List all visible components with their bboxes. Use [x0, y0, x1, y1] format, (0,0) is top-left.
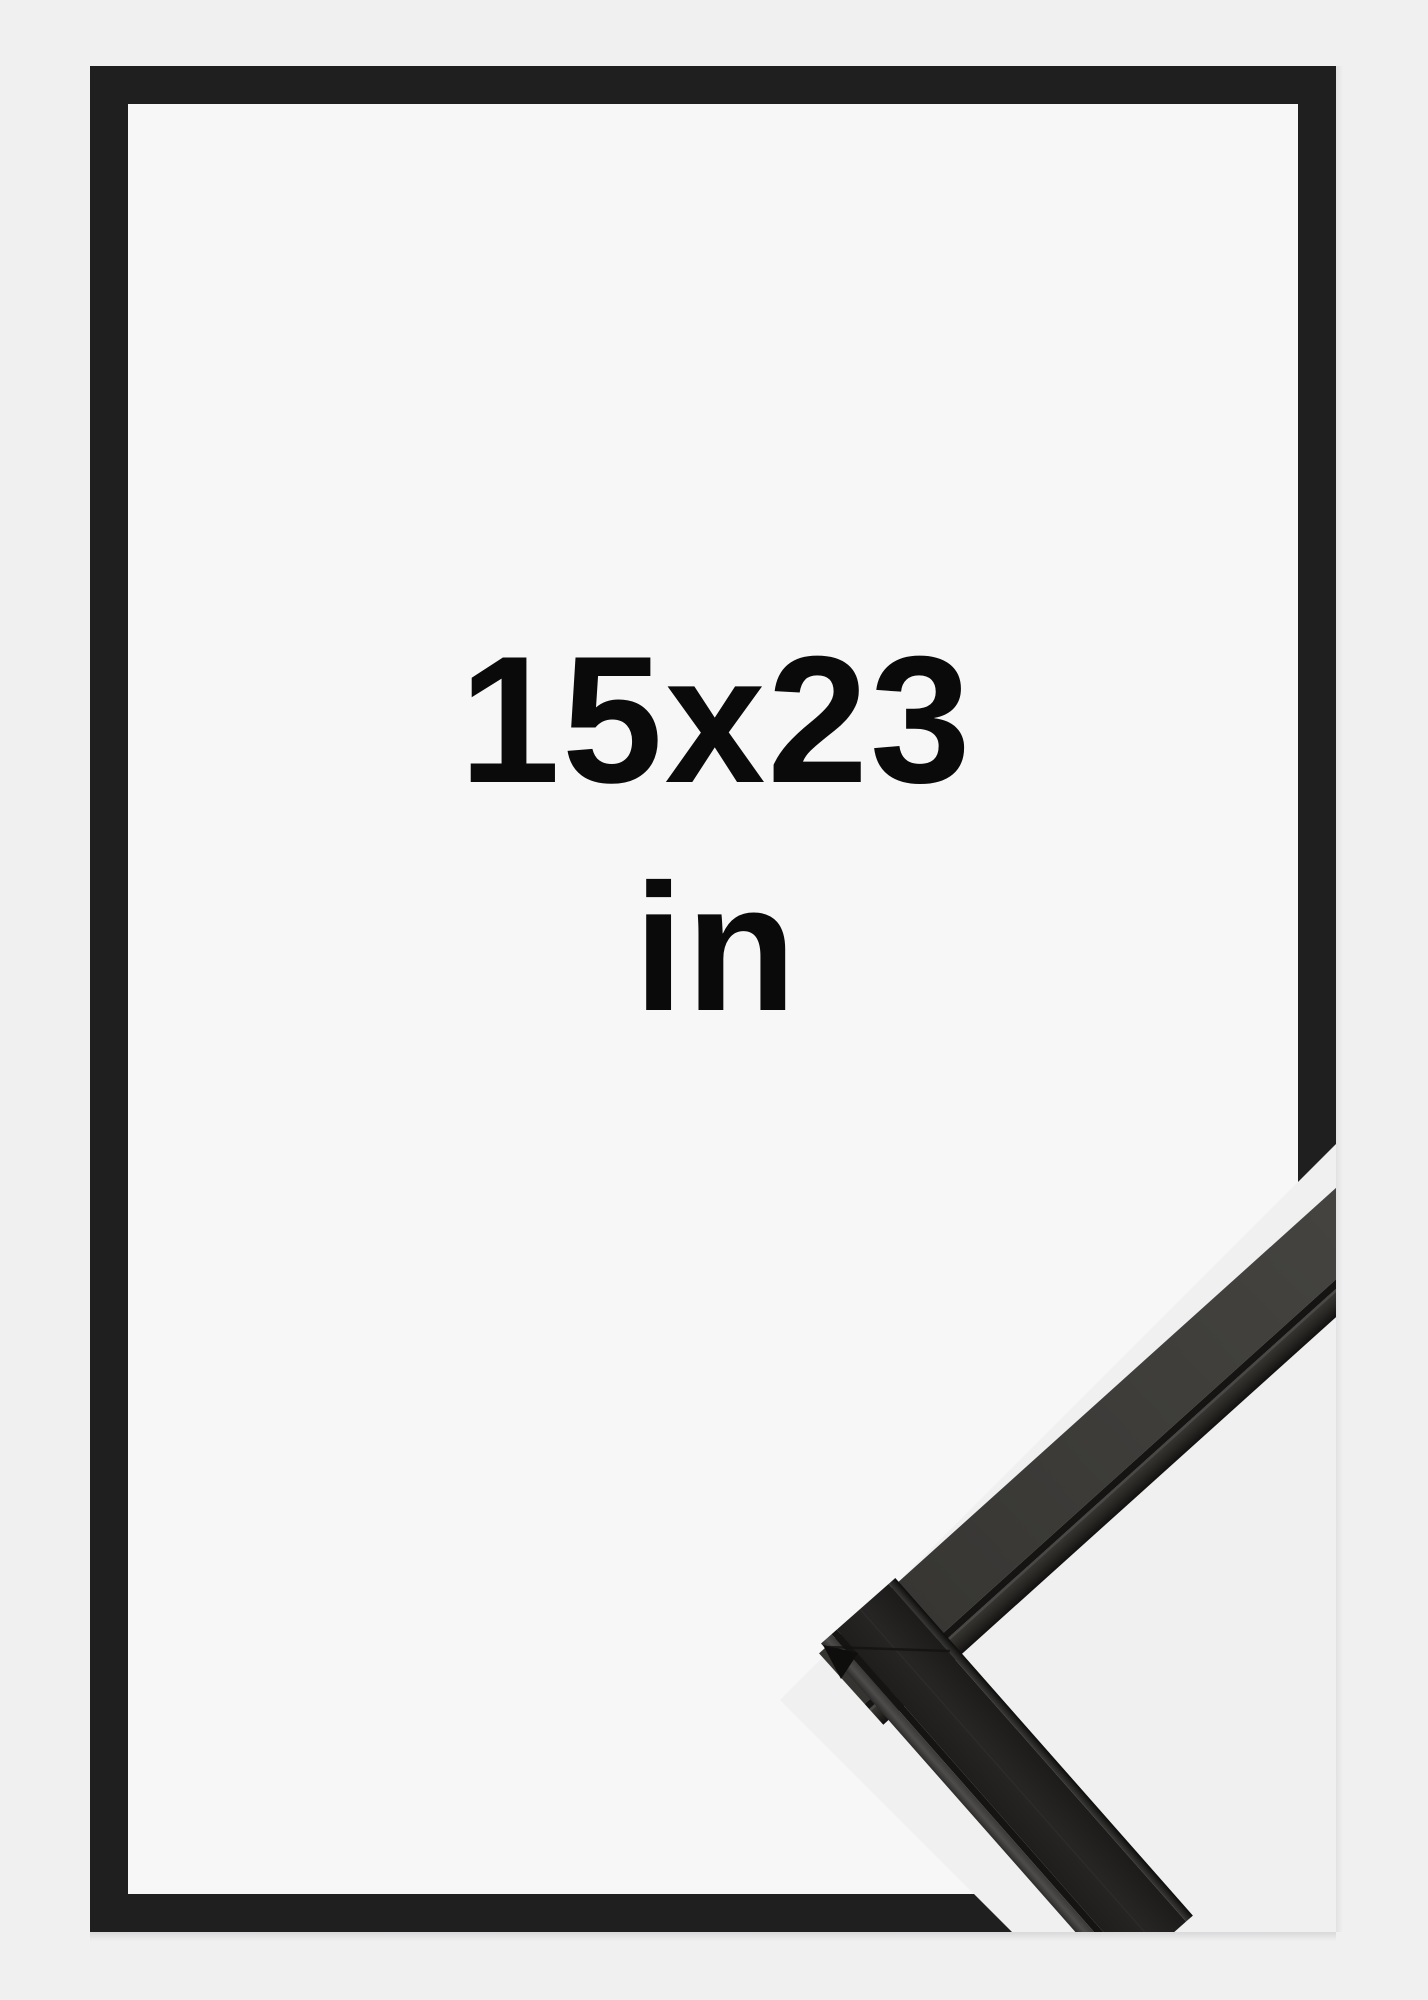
frame-drop-shadow-bottom	[90, 1932, 1336, 1941]
product-image-frame-size-mockup: 15x23 in	[0, 0, 1428, 2000]
size-label: 15x23	[459, 619, 972, 821]
frame-graphic-group: 15x23 in	[90, 66, 1418, 1981]
unit-label: in	[634, 847, 799, 1049]
frame-drop-shadow-right	[1336, 66, 1343, 1932]
frame-mockup-canvas: 15x23 in	[0, 0, 1428, 2000]
